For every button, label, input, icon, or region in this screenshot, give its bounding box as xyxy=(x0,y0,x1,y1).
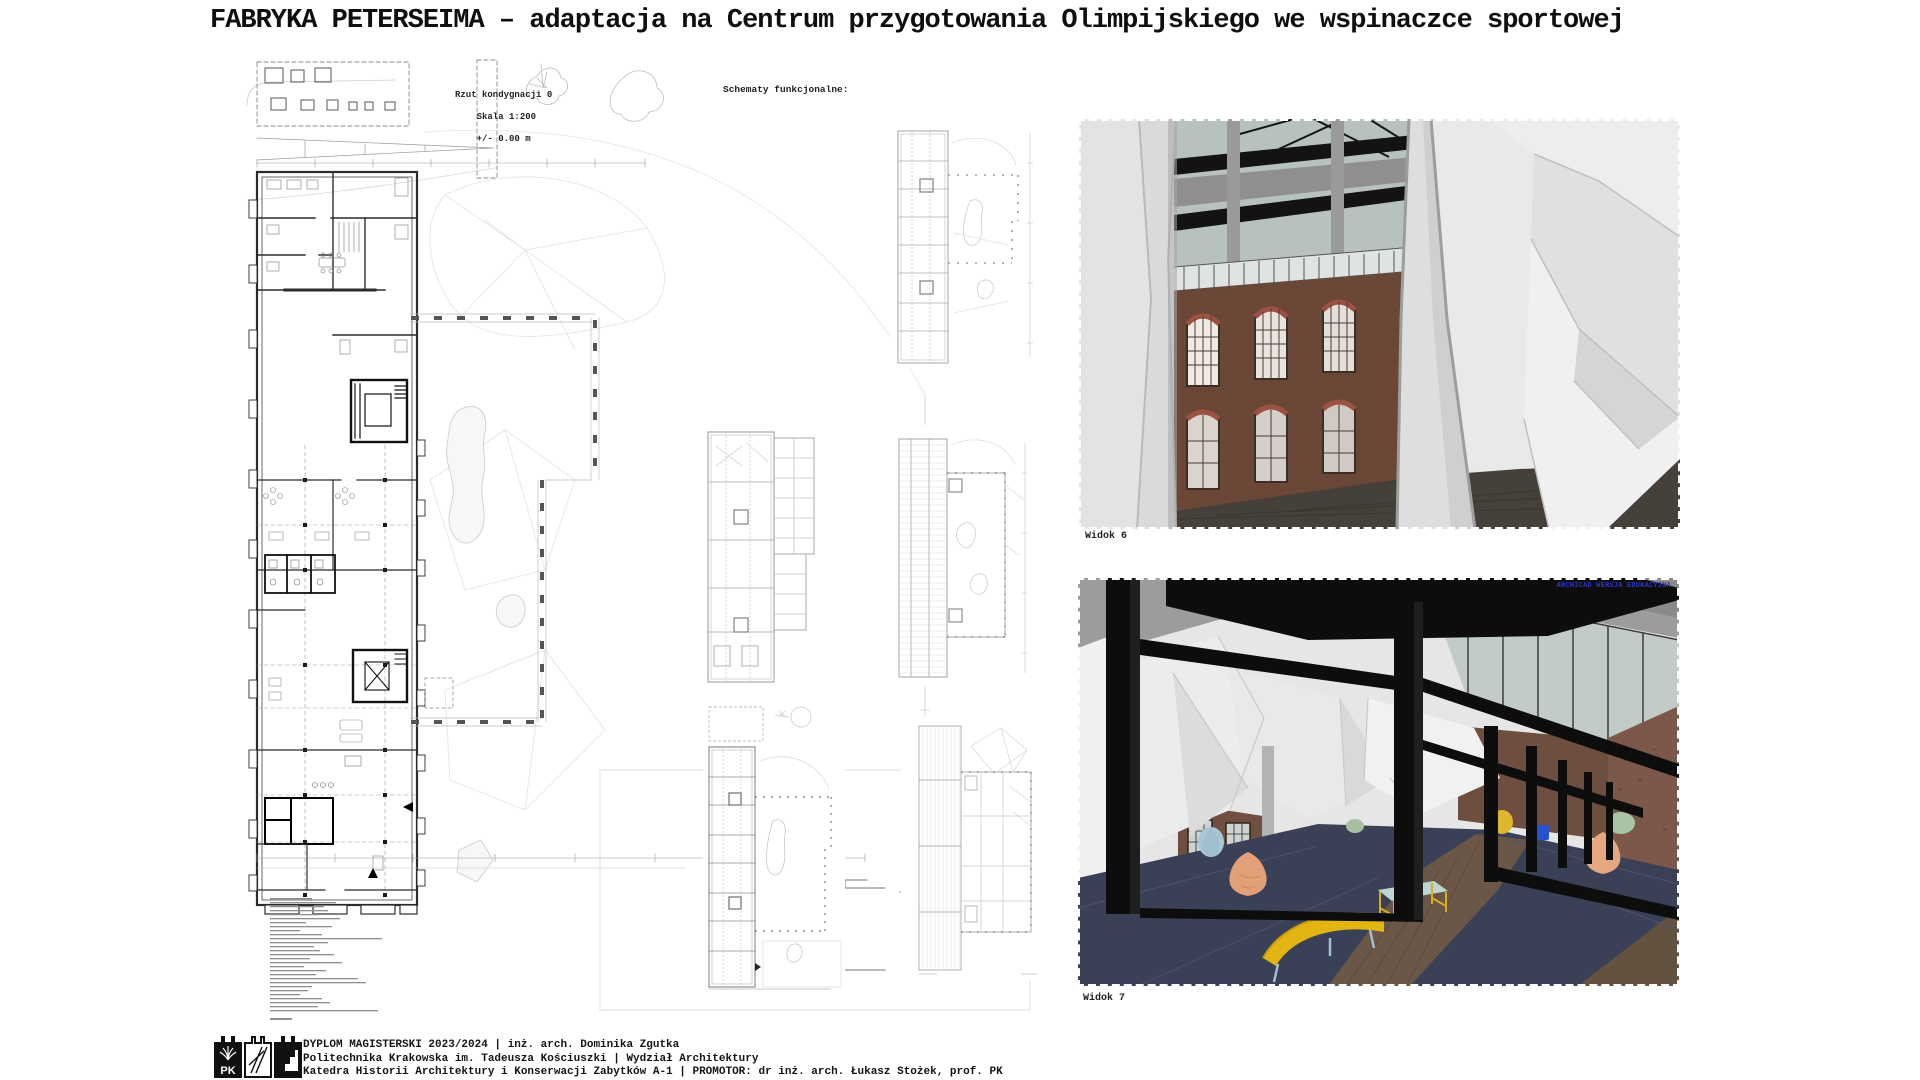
schematic-plan-5 xyxy=(901,716,1043,980)
presentation-board: FABRYKA PETERSEIMA – adaptacja na Centru… xyxy=(0,0,1920,1080)
svg-text:PK: PK xyxy=(220,1065,235,1077)
footer-line-2: Politechnika Krakowska im. Tadeusza Kośc… xyxy=(303,1053,1003,1067)
view-7-label: Widok 7 xyxy=(1083,993,1125,1004)
schematic-plan-1 xyxy=(890,113,1038,367)
render-view-6 xyxy=(1079,119,1680,529)
footer-credits: DYPLOM MAGISTERSKI 2023/2024 | inż. arch… xyxy=(303,1039,1003,1080)
schematic-plan-4 xyxy=(703,701,845,992)
plan-title: Rzut kondygnacji 0 xyxy=(455,90,552,100)
plan-label: Rzut kondygnacji 0 Skala 1:200 +/- 0.00 … xyxy=(455,90,552,156)
plan-legend xyxy=(270,898,382,1020)
render-view-7: ARCHICAD WERSJA EDUKACYJNA xyxy=(1078,578,1679,986)
pk-logo-tile-frame xyxy=(244,1036,272,1078)
plan-level: +/- 0.00 m xyxy=(477,134,531,144)
schematic-plan-2 xyxy=(702,422,818,686)
pk-logo-tile-crest: PK xyxy=(214,1036,242,1078)
pk-logo-tile-stairs xyxy=(274,1036,302,1078)
board-title: FABRYKA PETERSEIMA – adaptacja na Centru… xyxy=(210,6,1624,36)
politechnika-krakowska-logo: PK xyxy=(214,1036,302,1078)
schematics-heading: Schematy funkcjonalne: xyxy=(723,84,848,95)
footer-line-3: Katedra Historii Architektury i Konserwa… xyxy=(303,1066,1003,1080)
plan-scale: Skala 1:200 xyxy=(477,112,536,122)
archicad-watermark: ARCHICAD WERSJA EDUKACYJNA xyxy=(1557,582,1671,590)
schematic-plan-3 xyxy=(891,425,1035,686)
footer-line-1: DYPLOM MAGISTERSKI 2023/2024 | inż. arch… xyxy=(303,1039,1003,1053)
view-6-label: Widok 6 xyxy=(1085,531,1127,542)
